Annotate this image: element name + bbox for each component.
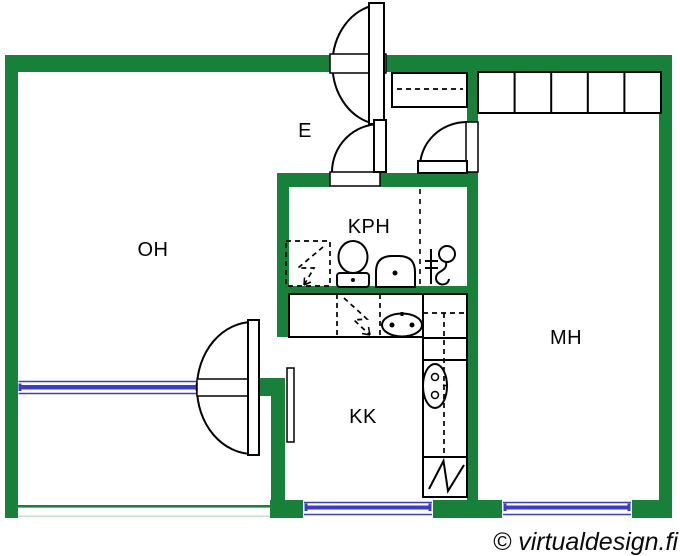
- mh-door-leaf: [418, 161, 467, 173]
- washbasin-icon: [376, 256, 415, 287]
- watermark: © virtualdesign.fi: [493, 528, 680, 556]
- mh-wardrobe-row-icon: [478, 72, 661, 113]
- floor-plan-canvas: OH E KPH KK MH © virtualdesign.fi: [0, 0, 680, 556]
- top-wall-left: [5, 55, 330, 72]
- oh-window: [18, 380, 199, 396]
- kph-door-opening: [330, 172, 380, 186]
- kph-left-wall: [277, 173, 289, 337]
- counter-side-panel: [287, 368, 294, 442]
- room-label-e: E: [298, 120, 312, 142]
- mh-wall-upper: [467, 72, 478, 122]
- floor-plan: OH E KPH KK MH © virtualdesign.fi: [0, 0, 680, 556]
- right-wall: [659, 55, 672, 518]
- room-label-kk: KK: [349, 406, 377, 428]
- left-wall: [5, 55, 18, 518]
- room-label-kph: KPH: [348, 216, 391, 238]
- kk-window: [303, 500, 433, 518]
- mh-window: [502, 500, 632, 518]
- room-label-mh: MH: [550, 327, 582, 349]
- entrance-door-leaf: [369, 3, 384, 124]
- mh-wall-lower: [467, 172, 478, 518]
- bottom-wall-seg3: [632, 500, 672, 518]
- top-wall-right: [386, 55, 672, 72]
- kph-door-leaf: [374, 120, 386, 172]
- entry-wardrobe-icon: [392, 73, 467, 107]
- balcony-side-wall: [271, 396, 285, 518]
- kph-top-wall-right: [380, 173, 467, 187]
- balcony-stub-wall: [258, 378, 285, 396]
- balcony-door-leaf: [248, 320, 259, 455]
- room-label-oh: OH: [138, 239, 169, 261]
- toilet-icon: [337, 241, 369, 287]
